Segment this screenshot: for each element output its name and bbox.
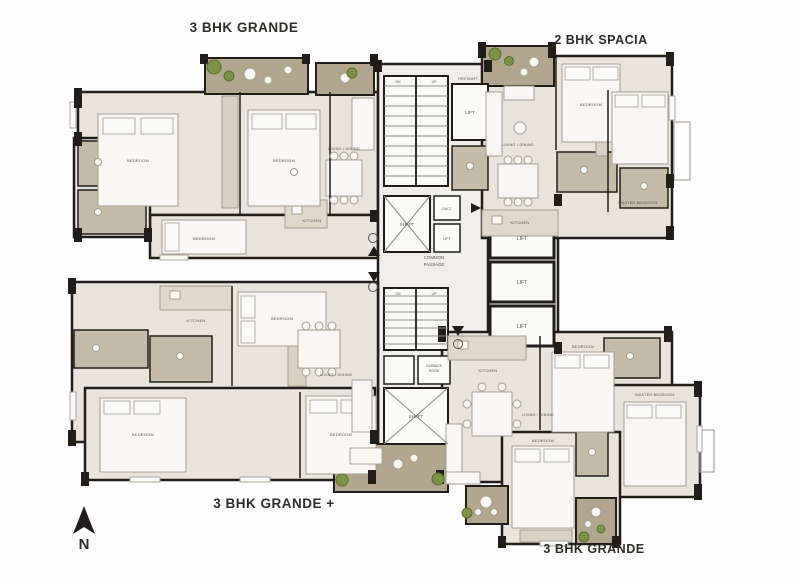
wc-fixture (627, 353, 634, 360)
dining-table (298, 330, 340, 368)
wall-accent (302, 54, 310, 64)
core-label: LIFT (443, 237, 451, 241)
room-label: BEDROOM (580, 102, 602, 107)
room-label: LIVING / DINING (320, 373, 352, 377)
dining-table (472, 392, 512, 436)
pillow (615, 95, 638, 107)
chair (330, 152, 338, 160)
deck-table (244, 68, 256, 80)
pillow (104, 401, 130, 414)
wardrobe (222, 96, 238, 208)
wall-accent (478, 42, 486, 58)
pillow (544, 449, 569, 462)
deck-chair (491, 509, 498, 516)
wc-fixture (177, 353, 184, 360)
chair (350, 152, 358, 160)
chair (514, 198, 522, 206)
deck-chair (520, 68, 528, 76)
plant-icon (462, 508, 472, 518)
plant-icon (489, 48, 501, 60)
wall-accent (694, 381, 702, 397)
chair (463, 400, 471, 408)
chair (513, 420, 521, 428)
core-label: GARBAGE (426, 364, 442, 368)
core-label: FIRE SHAFT (458, 77, 478, 81)
deck-chair (284, 66, 292, 74)
wall-accent (81, 472, 89, 486)
north-arrow-icon (73, 506, 95, 534)
unit-label-bottom-left: 3 BHK GRANDE + (213, 496, 334, 511)
plant-icon (336, 474, 348, 486)
chair (524, 156, 532, 164)
chair (328, 322, 336, 330)
wall-accent (370, 210, 378, 222)
wardrobe (520, 530, 572, 542)
chair (340, 196, 348, 204)
compass-label: N (79, 536, 90, 553)
wall-accent (370, 430, 378, 444)
lobby-small (384, 356, 414, 384)
wc-fixture (581, 167, 588, 174)
window (240, 477, 270, 482)
deck-chair (475, 509, 482, 516)
kitchen-sink (492, 216, 502, 224)
plant-icon (505, 57, 514, 66)
core-label: DN (396, 292, 401, 296)
wall-accent (374, 60, 382, 72)
unit-label-top-left: 3 BHK GRANDE (190, 20, 299, 35)
wall-accent (666, 174, 674, 188)
unit-label-top-right: 2 BHK SPACIA (554, 33, 647, 47)
chair (302, 368, 310, 376)
chair (340, 152, 348, 160)
floor-plan-image: 3 BHK GRANDE2 BHK SPACIA3 BHK GRANDE +3 … (0, 0, 800, 579)
wall-accent (74, 132, 82, 146)
pillow (141, 118, 173, 134)
pillow (656, 405, 681, 418)
pillow (310, 400, 337, 413)
balcony (674, 122, 690, 180)
kitchen-sink (292, 206, 302, 214)
pillow (565, 67, 590, 80)
plant-icon (597, 525, 605, 533)
wc-fixture (467, 163, 474, 170)
wall-accent (144, 228, 152, 242)
room-label: MASTER BEDROOM (635, 393, 674, 397)
coffee-table (514, 122, 526, 134)
room-label: LIVING / DINING (502, 143, 534, 147)
pillow (555, 355, 580, 368)
kitchen-sink (170, 291, 180, 299)
core-label: DUCT (442, 207, 451, 211)
sofa (446, 472, 480, 484)
wc-fixture (291, 169, 298, 176)
unit-label-bottom-right: 3 BHK GRANDE (543, 542, 644, 556)
wall-accent (666, 52, 674, 66)
pillow (286, 114, 316, 129)
deck-chair (585, 521, 592, 528)
plant-icon (224, 71, 234, 81)
room-label: MASTER BEDROOM (618, 201, 657, 205)
chair (463, 420, 471, 428)
core-label: LIFT (517, 324, 528, 330)
sofa (504, 86, 534, 100)
floor-plan-svg: 3 BHK GRANDE2 BHK SPACIA3 BHK GRANDE +3 … (0, 0, 800, 579)
plant-icon (579, 532, 589, 542)
core-label: LIFT (465, 110, 475, 115)
pillow (165, 223, 179, 251)
wall-accent (694, 484, 702, 500)
core-label: SHAFT (400, 222, 415, 227)
wc-fixture (93, 345, 100, 352)
wall-accent (664, 326, 672, 342)
chair (504, 198, 512, 206)
core-label: SHAFT (409, 414, 424, 419)
chair (513, 400, 521, 408)
core-label: PASSAGE (424, 262, 445, 267)
pillow (642, 95, 665, 107)
window (160, 255, 188, 260)
room-label: BEDROOM (132, 432, 154, 437)
wc-fixture (95, 159, 102, 166)
wall-accent (74, 88, 82, 108)
chair (302, 322, 310, 330)
room-label: BEDROOM (193, 236, 215, 241)
wall-accent (74, 228, 82, 242)
plant-icon (347, 68, 357, 78)
deck-table (480, 496, 492, 508)
deck-chair (410, 454, 418, 462)
wall-accent (498, 536, 506, 548)
core-label: ROOM (429, 369, 439, 373)
room-label: KITCHEN (479, 368, 498, 373)
plant-icon (207, 60, 221, 74)
window (697, 426, 702, 452)
wall-accent (68, 430, 76, 446)
wall-accent (200, 54, 208, 64)
pillow (252, 114, 282, 129)
wall-accent (554, 194, 562, 206)
dining-table (326, 160, 362, 196)
pillow (515, 449, 540, 462)
pillow (241, 321, 255, 343)
toilet (74, 330, 148, 368)
chair (498, 383, 506, 391)
core-label: LIFT (517, 280, 528, 286)
room-label: BEDROOM (330, 432, 352, 437)
dining-table (498, 164, 538, 198)
deck-chair (264, 76, 272, 84)
wall-accent (368, 470, 376, 484)
chair (504, 156, 512, 164)
wall-accent (666, 226, 674, 240)
sofa (486, 92, 502, 156)
pillow (134, 401, 160, 414)
room-label: LIVING / DINING (328, 147, 360, 151)
deck-table (393, 459, 403, 469)
room-label: BEDROOM (532, 438, 554, 443)
chair (478, 383, 486, 391)
pillow (593, 67, 618, 80)
room-label: LIVING / DINING (522, 413, 554, 417)
room-label: KITCHEN (511, 220, 530, 225)
core-label: COMMON (424, 255, 445, 260)
room-label: BEDROOM (273, 158, 295, 163)
wall-accent (68, 278, 76, 294)
deck-lounge (350, 448, 382, 464)
core-label: UP (432, 292, 437, 296)
window (669, 96, 675, 120)
sofa (446, 424, 462, 476)
chair (330, 196, 338, 204)
pillow (627, 405, 652, 418)
sofa (352, 380, 372, 432)
pillow (241, 296, 255, 318)
sofa (352, 98, 374, 150)
room-label: KITCHEN (303, 218, 322, 223)
chair (315, 322, 323, 330)
core-label: LIFT (517, 236, 528, 242)
wc-fixture (589, 449, 596, 456)
room-label: BEDROOM (271, 316, 293, 321)
core-label: UP (432, 80, 437, 84)
window (130, 477, 160, 482)
window (70, 392, 76, 420)
chair (350, 196, 358, 204)
room-label: BEDROOM (572, 344, 594, 349)
pillow (584, 355, 609, 368)
chair (524, 198, 532, 206)
wc-fixture (95, 209, 102, 216)
deck-table (529, 57, 539, 67)
plant-icon (432, 473, 444, 485)
core-label: DN (396, 80, 401, 84)
wall-accent (484, 60, 492, 72)
room-label: KITCHEN (187, 318, 206, 323)
pillow (103, 118, 135, 134)
deck-table (591, 507, 601, 517)
wc-fixture (641, 183, 648, 190)
wall-accent (554, 342, 562, 354)
room-label: BEDROOM (127, 158, 149, 163)
chair (514, 156, 522, 164)
